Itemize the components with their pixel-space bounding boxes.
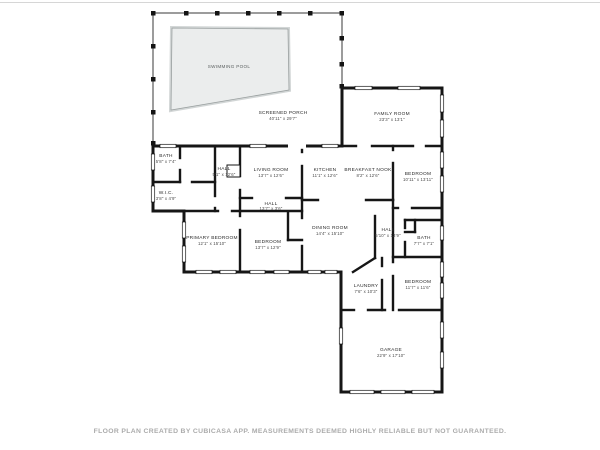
dims-bedroom-mid: 13'7" x 12'9" [255, 245, 281, 250]
dims-family-room: 23'3" x 13'1" [379, 117, 405, 122]
dims-kitchen: 11'1" x 12'6" [312, 173, 338, 178]
dims-bedroom-east: 10'11" x 13'11" [403, 177, 433, 182]
dims-bath-nw: 5'8" x 7'4" [156, 159, 177, 164]
dims-hall-south: 5'10" x 13'9" [375, 233, 401, 238]
door-openings [288, 143, 306, 149]
dims-wic: 3'8" x 4'9" [156, 196, 177, 201]
dims-laundry: 7'6" x 10'3" [355, 289, 378, 294]
dims-living-room: 13'7" x 12'6" [258, 173, 284, 178]
dims-breakfast-nook: 8'2" x 12'6" [357, 173, 380, 178]
floor-plan: SWIMMING POOL SCREENED PORCH 40'11" x 29… [0, 0, 600, 450]
swimming-pool [171, 28, 289, 110]
dims-bedroom-south: 11'7" x 11'6" [406, 285, 431, 290]
dims-hall-nw: 5'1" x 12'6" [213, 172, 236, 177]
disclaimer-text: FLOOR PLAN CREATED BY CUBICASA APP. MEAS… [0, 428, 600, 435]
dims-dining-room: 14'4" x 15'10" [316, 231, 344, 236]
dims-hall-north: 13'7" x 3'6" [260, 206, 283, 211]
dims-garage: 22'9" x 17'10" [377, 353, 405, 358]
dims-bath-south: 7'7" x 7'1" [414, 241, 435, 246]
dims-primary-bedroom: 12'1" x 15'10" [198, 241, 226, 246]
interior-walls [153, 146, 442, 310]
label-swimming-pool: SWIMMING POOL [208, 64, 251, 69]
dims-screened-porch: 40'11" x 29'7" [269, 116, 297, 121]
